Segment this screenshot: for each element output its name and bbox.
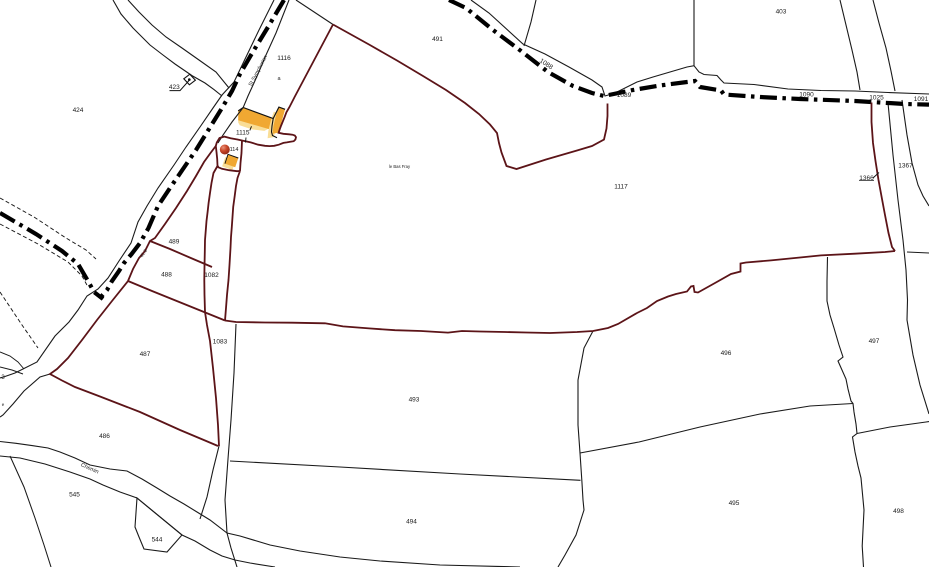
svg-text:495: 495 xyxy=(729,500,740,507)
svg-text:487: 487 xyxy=(140,351,151,358)
svg-text:le Bas Fray: le Bas Fray xyxy=(389,164,411,169)
svg-text:488: 488 xyxy=(161,272,172,279)
svg-text:491: 491 xyxy=(432,36,443,43)
svg-text:544: 544 xyxy=(152,537,163,544)
svg-text:1117: 1117 xyxy=(614,184,628,191)
svg-text:1115: 1115 xyxy=(236,130,250,137)
svg-text:403: 403 xyxy=(776,9,787,16)
svg-text:497: 497 xyxy=(869,338,880,345)
svg-text:489: 489 xyxy=(169,239,180,246)
svg-text:1083: 1083 xyxy=(213,339,228,346)
svg-text:114: 114 xyxy=(230,147,239,153)
svg-text:1090: 1090 xyxy=(799,92,814,99)
svg-text:1089: 1089 xyxy=(617,92,632,99)
svg-text:494: 494 xyxy=(406,519,417,526)
svg-text:486: 486 xyxy=(99,433,110,440)
svg-text:493: 493 xyxy=(409,397,420,404)
svg-text:496: 496 xyxy=(721,350,732,357)
svg-text:1116: 1116 xyxy=(277,55,291,62)
svg-text:1366: 1366 xyxy=(859,175,874,182)
svg-text:1091: 1091 xyxy=(914,96,929,103)
svg-text:1025: 1025 xyxy=(869,95,884,102)
svg-text:423: 423 xyxy=(169,84,180,91)
svg-text:1082: 1082 xyxy=(204,272,219,279)
svg-text:1367: 1367 xyxy=(898,163,913,170)
svg-text:424: 424 xyxy=(73,107,84,114)
svg-text:498: 498 xyxy=(893,508,904,515)
svg-text:545: 545 xyxy=(69,492,80,499)
